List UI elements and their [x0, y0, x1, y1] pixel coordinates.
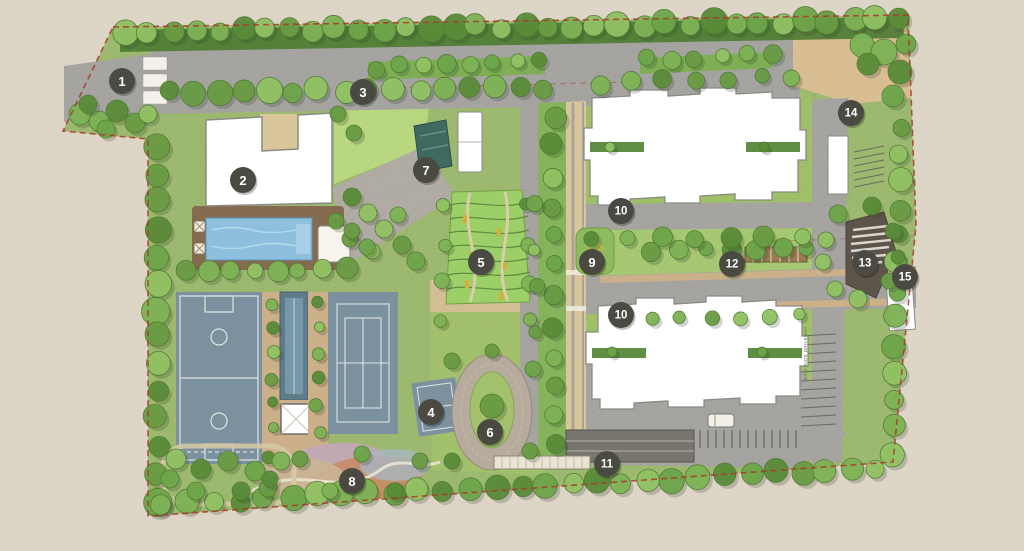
- marker-number: 8: [348, 474, 355, 489]
- marker-number: 10: [615, 310, 628, 322]
- marker-number: 6: [486, 425, 493, 440]
- marker-number: 5: [477, 255, 484, 270]
- marker-number: 10: [615, 206, 628, 218]
- marker-number: 7: [422, 163, 429, 178]
- marker-number: 2: [239, 173, 246, 188]
- site-plan-canvas: 3.0M WIDE DRIVEWAY 123456789101011121314…: [0, 0, 1024, 551]
- trellis-structure: [494, 456, 590, 469]
- car: [708, 414, 734, 427]
- marker-number: 15: [899, 272, 912, 284]
- driveway-annotation: 3.0M WIDE DRIVEWAY: [803, 326, 808, 380]
- marker-number: 12: [726, 259, 739, 271]
- marker-number: 3: [359, 85, 366, 100]
- site-plan-page: 3.0M WIDE DRIVEWAY 123456789101011121314…: [0, 0, 1024, 551]
- marker-number: 14: [845, 108, 858, 120]
- marker-number: 1: [118, 74, 125, 89]
- marker-number: 11: [601, 459, 614, 471]
- marker-number: 9: [588, 255, 595, 270]
- east-small-building: [828, 136, 848, 194]
- marker-number: 4: [427, 405, 435, 420]
- marker-number: 13: [859, 258, 872, 270]
